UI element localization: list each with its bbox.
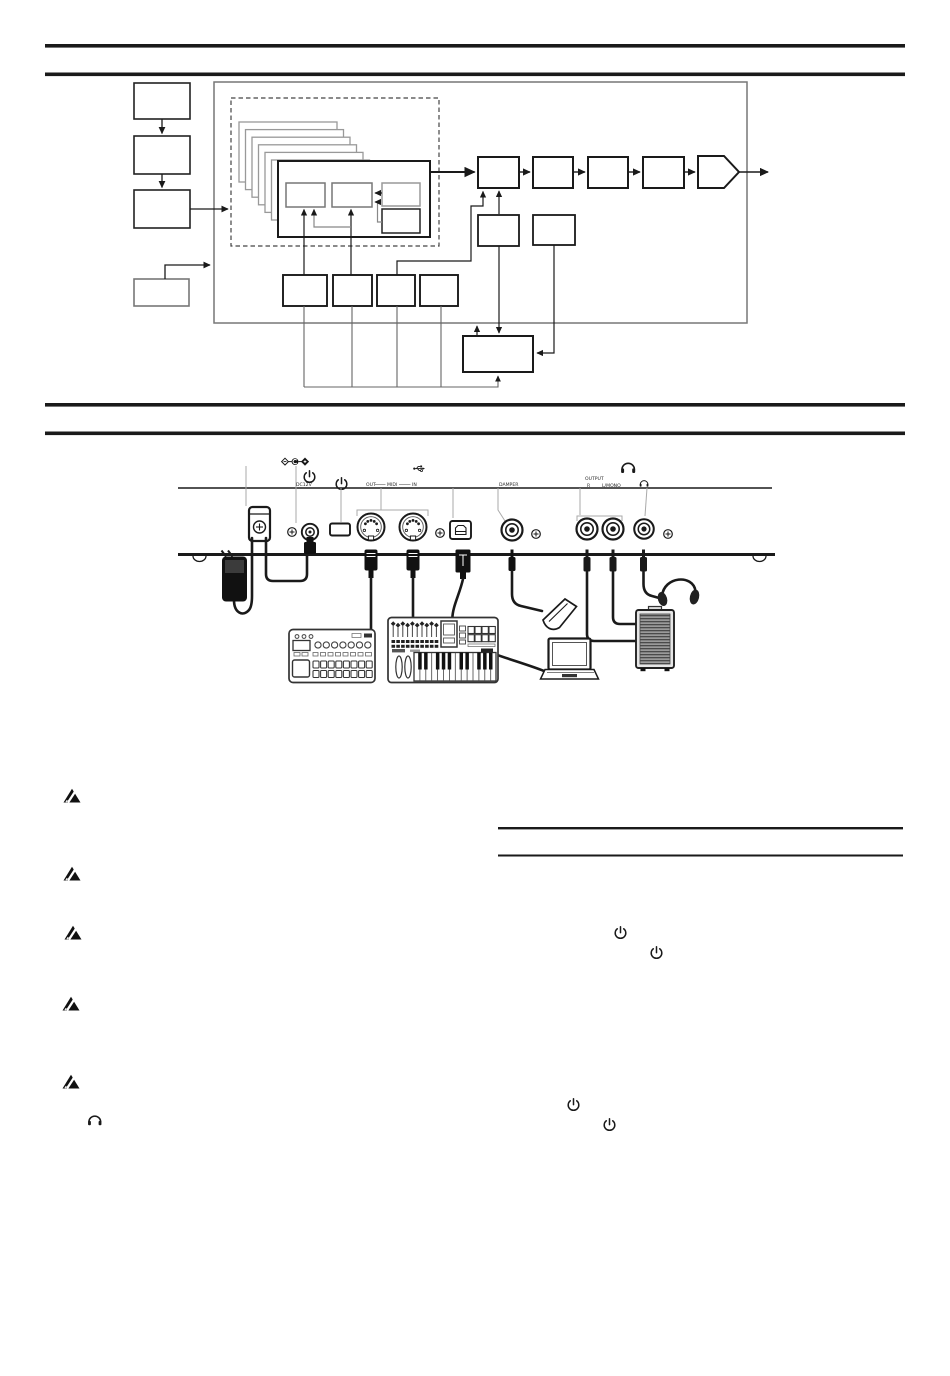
rubber-foot-right: [753, 556, 766, 562]
dc-cable: [266, 538, 307, 581]
power-icon: [651, 947, 662, 959]
headphones-plug: [640, 550, 647, 572]
cable-hook: [249, 507, 270, 541]
caution-icon: [65, 926, 82, 940]
power-button: [330, 524, 350, 536]
caution-icon: [64, 789, 81, 803]
midi-in-plug: [407, 550, 420, 579]
diagram-chain-box-1: [478, 157, 519, 188]
damper-cable: [512, 571, 542, 611]
diagram-controller-box: [463, 336, 533, 372]
midi-out-port: [358, 514, 385, 541]
diagram-param-box-4: [420, 275, 458, 306]
right-column-rule-1: [498, 827, 903, 829]
damper-pedal: [543, 599, 577, 629]
diagram-param-box-3: [377, 275, 415, 306]
output-l-cable: [613, 572, 636, 624]
block-diagram: [134, 82, 768, 387]
usb-plug: [456, 550, 471, 580]
caution-icon: [64, 867, 81, 881]
dc-polarity-icon: [282, 458, 309, 465]
diagram-sub-box-1: [286, 183, 325, 207]
power-icon: [615, 927, 626, 939]
screw-icon: [664, 530, 673, 539]
usb-icon: [413, 466, 425, 472]
mod-wheel: [405, 656, 411, 678]
output-l-plug: [610, 550, 617, 572]
keyboard-display: [441, 621, 457, 647]
rule-top-1: [45, 44, 905, 48]
diagram-chain-box-4: [643, 157, 684, 188]
midi-out-plug: [365, 550, 378, 579]
output-label: OUTPUT: [585, 476, 604, 482]
output-r-jack: [577, 519, 598, 540]
caution-icon: [63, 1075, 80, 1089]
headphones-icon: [88, 1116, 101, 1125]
power-icon: [304, 471, 315, 483]
notes-area: [63, 789, 904, 1131]
diagram-box-left-2: [134, 136, 190, 174]
headphones-jack: [634, 519, 654, 539]
leader-lines: [246, 466, 647, 523]
rule-mid-2: [45, 432, 905, 436]
output-l-mono-label: L/MONO: [602, 483, 621, 489]
headphones-icon: [621, 463, 635, 473]
diagram-sub-box-4: [382, 209, 420, 233]
diagram-box-left-1: [134, 83, 190, 119]
damper-plug: [509, 550, 516, 572]
output-r-plug: [584, 550, 591, 572]
output-r-cable: [587, 572, 636, 641]
diagram-box-left-4: [134, 279, 189, 306]
powered-monitor: [636, 607, 674, 672]
diagram-sub-box-2: [332, 183, 372, 207]
keyboard-keys: [414, 653, 496, 682]
groove-machine: [289, 630, 375, 683]
screw-icon: [532, 530, 541, 539]
rear-panel-illustration: DC12V OUT MIDI IN DAMPER OUTPUT R L/MONO: [178, 458, 775, 682]
diagram-mod-box-1: [478, 215, 519, 246]
midi-in-label: IN: [412, 482, 417, 488]
headphones-icon: [640, 481, 649, 487]
manual-page: DC12V OUT MIDI IN DAMPER OUTPUT R L/MONO: [0, 0, 950, 1376]
diagram-mod-box-2: [533, 215, 575, 245]
caution-icon: [63, 997, 80, 1011]
pitch-wheel: [396, 656, 402, 678]
damper-label: DAMPER: [499, 482, 519, 488]
diagram-param-box-2: [333, 275, 372, 306]
right-column-rule-2: [498, 855, 903, 857]
diagram-amp-shape: [698, 156, 739, 188]
ac-adapter: [222, 551, 248, 602]
screw-icon: [288, 528, 297, 537]
power-icon: [568, 1099, 579, 1111]
diagram-chain-box-2: [533, 157, 573, 188]
rubber-foot-left: [193, 556, 206, 562]
midi-label: MIDI: [387, 482, 397, 488]
midi-in-port: [400, 514, 427, 541]
rule-top-2: [45, 73, 905, 77]
diagram-sub-box-3: [382, 183, 420, 206]
screw-icon: [436, 529, 445, 538]
diagram-chain-box-3: [588, 157, 628, 188]
damper-jack: [502, 520, 523, 541]
rule-mid-1: [45, 403, 905, 407]
diagram-box-left-3: [134, 190, 190, 228]
computer: [541, 639, 599, 680]
midi-out-label: OUT: [366, 482, 376, 488]
headphones: [656, 580, 701, 608]
power-icon: [604, 1119, 615, 1131]
dc-label: DC12V: [296, 482, 313, 488]
page-canvas: DC12V OUT MIDI IN DAMPER OUTPUT R L/MONO: [0, 0, 950, 1376]
diagram-param-box-1: [283, 275, 327, 306]
output-l-mono-jack: [603, 519, 624, 540]
usb-b-port: [450, 521, 471, 539]
midi-keyboard-controller: [388, 618, 498, 683]
